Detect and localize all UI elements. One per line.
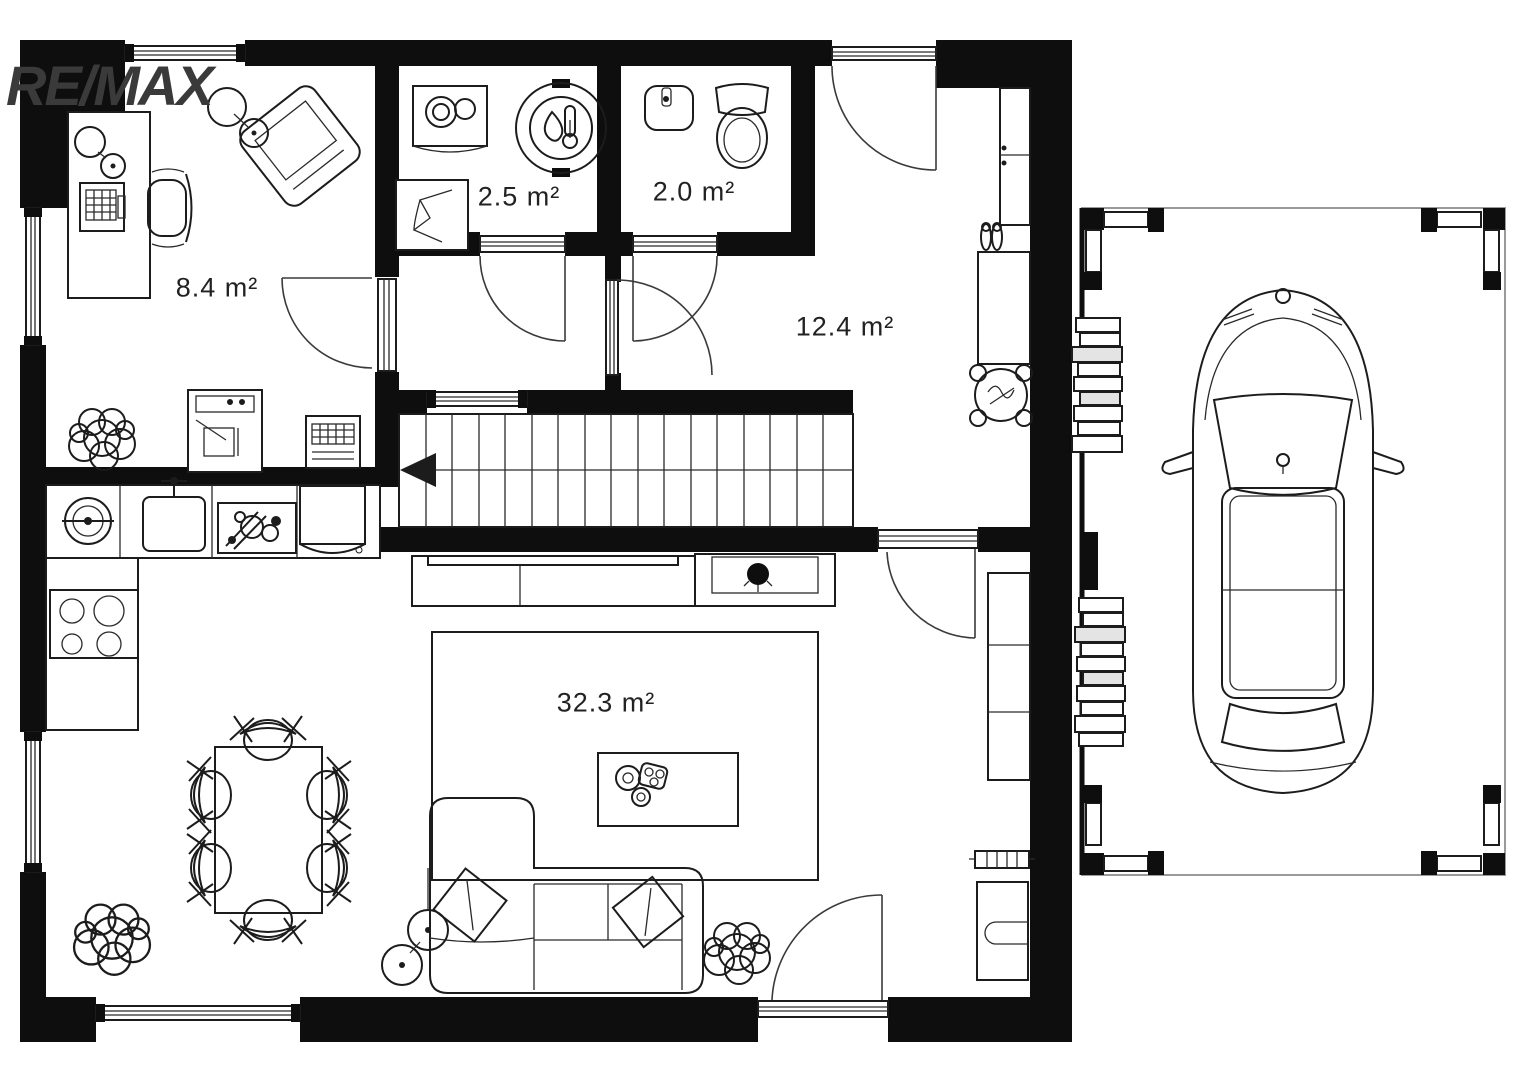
floor-lamp	[382, 868, 448, 985]
kitchen	[46, 477, 380, 730]
wardrobe	[1000, 88, 1030, 225]
entrance-door	[832, 66, 936, 170]
laundry-basket	[396, 180, 468, 250]
office-chair	[148, 169, 192, 247]
firewood-stack	[1072, 318, 1122, 452]
office-left-window	[24, 208, 42, 345]
wc-door	[633, 256, 717, 341]
radiator	[969, 851, 1035, 868]
carport	[1072, 208, 1505, 875]
carport-pillar	[1421, 785, 1505, 875]
living-left-window	[24, 732, 42, 872]
carport-pillar	[1082, 785, 1164, 875]
living-room-door	[887, 549, 975, 638]
kitchen-counter-left	[46, 558, 138, 730]
floor-plan-canvas: RE/MAX 8.4 m² 2.5 m² 2.0 m² 12.4 m² 32.3…	[0, 0, 1527, 1080]
wc-fixtures	[645, 84, 768, 168]
staircase	[399, 414, 853, 527]
dining-set	[187, 716, 351, 944]
firewood-stack	[1075, 598, 1125, 746]
water-heater	[516, 79, 606, 177]
room-label-office: 8.4 m²	[176, 273, 259, 304]
car	[1162, 289, 1403, 793]
washing-machine	[413, 86, 487, 152]
shoes	[981, 223, 1002, 250]
room-label-living: 32.3 m²	[557, 688, 656, 719]
bookshelf	[988, 573, 1030, 780]
room-label-utility: 2.5 m²	[478, 182, 561, 213]
utility-room-fixtures	[396, 79, 606, 250]
living-bottom-window	[96, 1004, 300, 1022]
carport-pillar	[1082, 208, 1164, 290]
side-mirror	[1373, 452, 1404, 474]
sofa	[430, 798, 703, 993]
tv-lowboard	[412, 556, 695, 606]
stair-direction-arrow	[400, 453, 436, 487]
rug	[432, 632, 818, 880]
stair-window	[427, 390, 527, 408]
storage-box	[306, 416, 360, 468]
terrace-door	[772, 895, 882, 1000]
corridor-door	[606, 280, 712, 375]
carport-pillar	[1421, 208, 1505, 290]
door-thresholds	[378, 236, 978, 1017]
entrance-threshold	[832, 47, 936, 60]
toilet	[716, 84, 768, 168]
pillow	[613, 877, 683, 947]
coffee-table	[598, 753, 738, 826]
room-label-wc: 2.0 m²	[653, 177, 736, 208]
hallway-furniture	[970, 88, 1032, 426]
fridge	[300, 486, 365, 553]
dresser	[978, 252, 1030, 364]
dining-table	[215, 747, 322, 913]
flower-stool	[970, 365, 1032, 426]
carport-pillar	[1082, 532, 1098, 590]
cabinet	[977, 882, 1028, 980]
floor-plan-drawing	[0, 0, 1527, 1080]
hand-basin	[645, 86, 693, 130]
desk	[68, 112, 150, 298]
printer	[188, 390, 262, 472]
office-door	[282, 278, 372, 368]
side-mirror	[1162, 452, 1193, 474]
remax-logo: RE/MAX	[6, 58, 212, 114]
room-label-hallway: 12.4 m²	[796, 312, 895, 343]
plant-cabinet	[695, 554, 835, 606]
tv	[428, 556, 678, 565]
living-room	[74, 554, 1035, 993]
utility-door	[480, 256, 565, 341]
